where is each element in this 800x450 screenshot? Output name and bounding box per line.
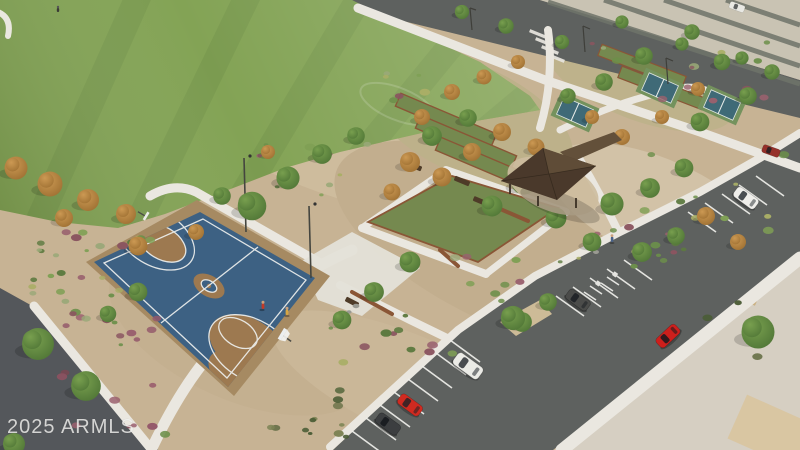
shrub bbox=[450, 254, 461, 261]
shrub bbox=[62, 299, 70, 304]
shrub bbox=[656, 254, 661, 257]
shrub bbox=[116, 333, 124, 338]
shrub bbox=[466, 281, 475, 287]
shrub bbox=[407, 347, 416, 353]
shrub bbox=[759, 95, 768, 101]
shrub bbox=[109, 397, 120, 404]
shrub bbox=[515, 279, 524, 285]
shrub bbox=[149, 383, 156, 388]
shrub bbox=[78, 275, 86, 280]
shrub bbox=[684, 85, 692, 90]
shrub bbox=[160, 431, 170, 438]
shrub bbox=[658, 96, 668, 102]
shrub bbox=[302, 428, 309, 433]
shrub bbox=[343, 435, 349, 439]
shrub bbox=[500, 282, 509, 288]
shrub bbox=[733, 183, 738, 186]
shrub bbox=[576, 257, 581, 260]
shrub bbox=[147, 327, 157, 333]
shrub bbox=[333, 402, 343, 409]
shrub bbox=[381, 329, 392, 336]
shrub bbox=[752, 353, 762, 360]
shrub bbox=[364, 142, 372, 147]
shrub bbox=[57, 270, 66, 276]
shrub bbox=[734, 300, 741, 305]
shrub bbox=[63, 323, 70, 328]
shrub bbox=[319, 193, 323, 196]
shrub bbox=[115, 288, 123, 293]
shrub bbox=[338, 359, 348, 365]
rendering-canvas: 2025 ARMLS bbox=[0, 0, 800, 450]
shrub bbox=[590, 42, 595, 45]
shrub bbox=[71, 234, 82, 241]
shrub bbox=[511, 257, 520, 263]
shrub bbox=[403, 314, 409, 318]
shrub bbox=[62, 229, 71, 235]
shrub bbox=[81, 316, 90, 322]
shrub bbox=[389, 97, 398, 103]
shrub bbox=[558, 260, 563, 263]
shrub bbox=[308, 432, 313, 435]
shrub bbox=[310, 418, 317, 422]
shrub bbox=[624, 224, 634, 231]
shrub bbox=[134, 337, 141, 341]
shrub bbox=[339, 423, 345, 427]
shrub bbox=[490, 290, 500, 297]
shrub bbox=[764, 40, 770, 44]
shrub bbox=[28, 284, 36, 289]
shrub bbox=[630, 264, 637, 269]
shrub bbox=[754, 58, 762, 64]
shrub bbox=[702, 315, 712, 322]
shrub bbox=[99, 276, 105, 280]
shrub bbox=[126, 330, 136, 337]
shrub bbox=[56, 289, 65, 295]
shrub bbox=[427, 341, 438, 348]
shrub bbox=[326, 183, 333, 188]
shrub bbox=[420, 89, 431, 96]
shrub bbox=[108, 294, 114, 298]
shrub bbox=[37, 248, 43, 252]
shrub bbox=[146, 237, 156, 243]
shrub bbox=[69, 311, 76, 316]
shrub bbox=[383, 75, 389, 79]
shrub bbox=[147, 423, 158, 430]
watermark: 2025 ARMLS bbox=[7, 416, 135, 438]
shrub bbox=[119, 343, 123, 346]
distant-figure bbox=[57, 6, 59, 12]
shrub bbox=[670, 250, 677, 254]
shrub bbox=[53, 253, 59, 257]
shrub bbox=[720, 216, 729, 222]
shrub bbox=[693, 196, 698, 199]
shrub bbox=[152, 316, 161, 322]
shrub bbox=[267, 425, 275, 430]
shrub bbox=[334, 430, 344, 437]
shrub bbox=[78, 230, 87, 236]
shrub bbox=[681, 248, 687, 252]
shrub bbox=[610, 228, 617, 233]
shrub bbox=[498, 299, 505, 303]
shrub bbox=[335, 387, 345, 393]
shrub bbox=[29, 291, 36, 296]
shrub bbox=[601, 46, 606, 50]
shrub bbox=[95, 243, 104, 249]
shrub bbox=[648, 152, 656, 157]
shrub bbox=[333, 396, 343, 403]
shrub bbox=[112, 321, 118, 325]
shrub bbox=[640, 207, 650, 214]
shrub bbox=[394, 327, 403, 333]
shrub bbox=[48, 274, 55, 278]
shrub bbox=[417, 74, 422, 77]
shrub bbox=[37, 241, 45, 246]
shrub bbox=[612, 57, 622, 64]
shrub bbox=[30, 278, 37, 283]
shrub bbox=[763, 227, 774, 234]
shrub bbox=[85, 249, 89, 252]
shrub bbox=[338, 173, 343, 176]
shrub bbox=[660, 258, 667, 263]
shrub bbox=[424, 348, 435, 355]
shrub bbox=[650, 242, 660, 249]
park-rendering: 2025 ARMLS bbox=[0, 0, 800, 450]
shrub bbox=[448, 350, 457, 356]
shrub bbox=[676, 199, 685, 205]
shrub bbox=[709, 98, 718, 104]
shrub bbox=[359, 343, 369, 350]
shrub bbox=[689, 66, 694, 69]
shrub bbox=[462, 254, 471, 260]
shrub bbox=[57, 373, 67, 380]
shrub bbox=[764, 214, 771, 219]
